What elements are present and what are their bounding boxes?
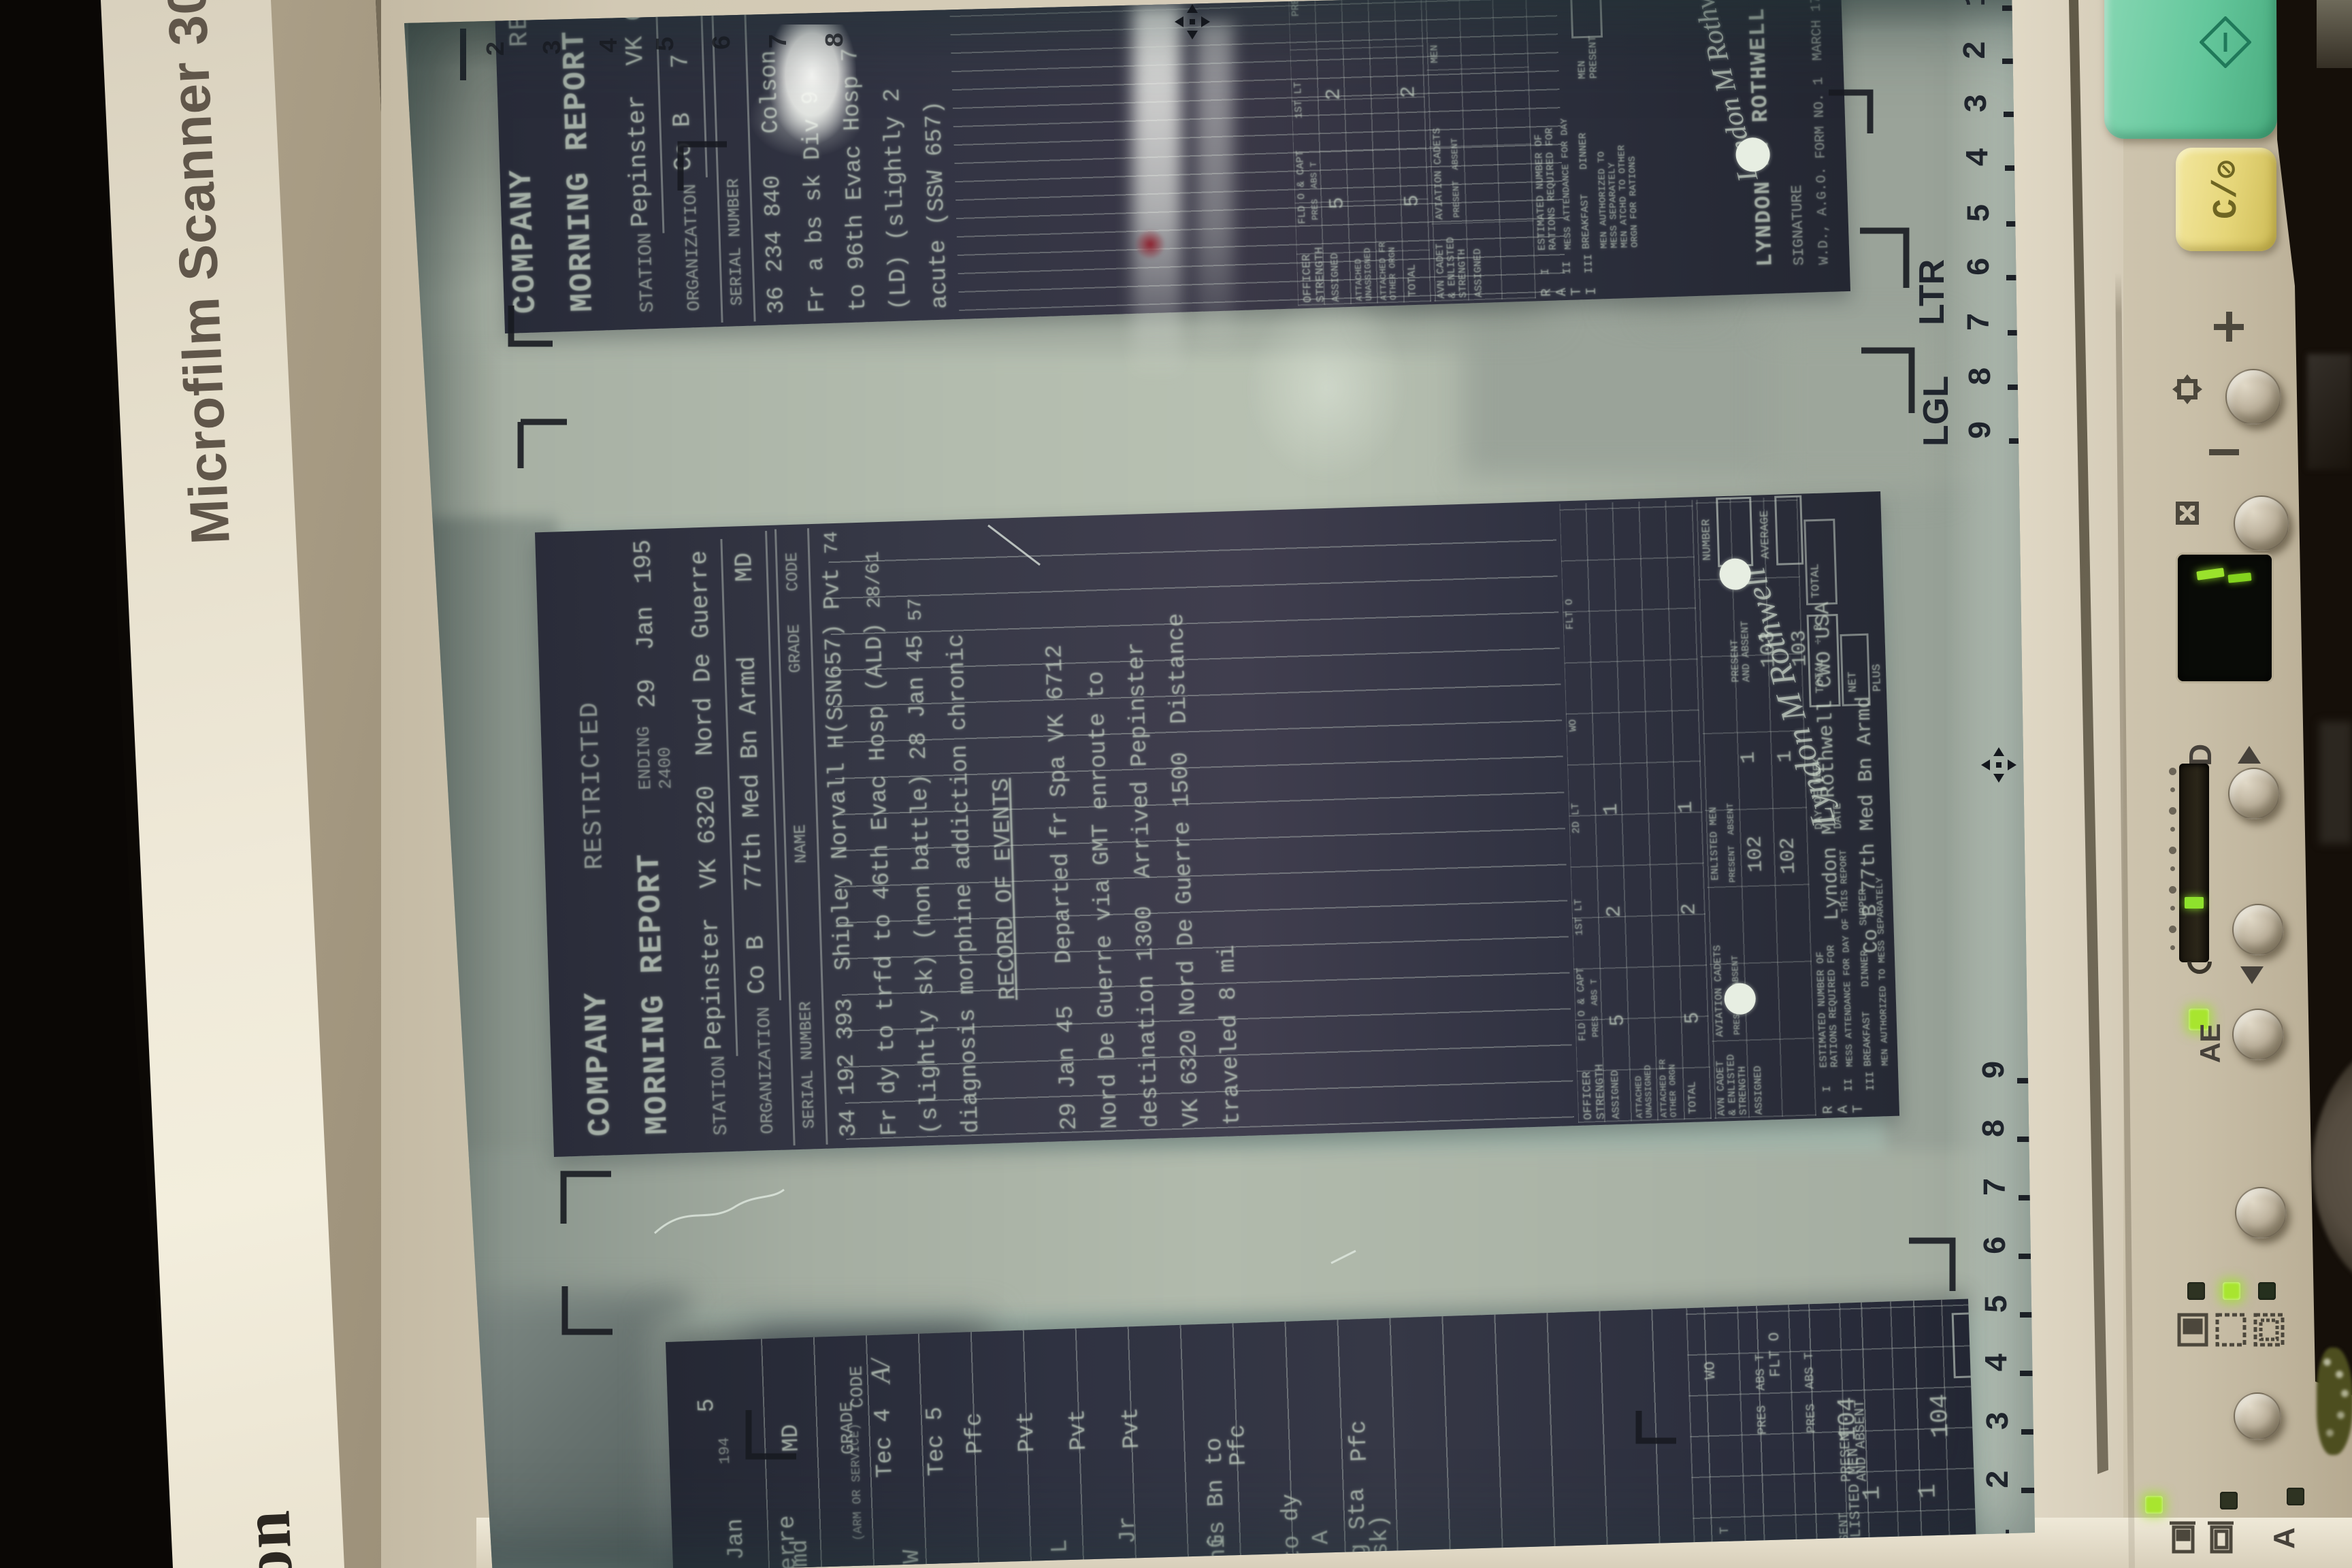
svg-text:8: 8: [1978, 1119, 2014, 1138]
svg-text:2: 2: [1982, 1470, 2018, 1489]
svg-text:6: 6: [708, 35, 738, 50]
svg-text:9: 9: [1964, 421, 2000, 440]
svg-text:3: 3: [1982, 1411, 2018, 1431]
svg-text:4: 4: [1961, 148, 1997, 167]
svg-text:8: 8: [821, 32, 851, 48]
svg-text:LTR: LTR: [1912, 259, 1952, 325]
svg-text:2: 2: [1959, 41, 1995, 60]
svg-text:4: 4: [595, 37, 625, 53]
svg-text:2: 2: [483, 41, 512, 56]
svg-text:3: 3: [539, 39, 568, 55]
svg-text:6: 6: [1979, 1236, 2015, 1255]
svg-text:LGL: LGL: [1916, 376, 1956, 446]
svg-text:5: 5: [1980, 1294, 2016, 1313]
svg-text:5: 5: [652, 36, 681, 52]
svg-text:7: 7: [1979, 1177, 2015, 1196]
svg-text:3: 3: [1960, 94, 1996, 113]
svg-text:1: 1: [1959, 0, 1995, 7]
svg-text:7: 7: [1963, 312, 1999, 331]
svg-text:4: 4: [1980, 1353, 2016, 1372]
svg-text:7: 7: [765, 33, 794, 49]
svg-text:5: 5: [1963, 203, 1999, 223]
svg-text:8: 8: [1964, 367, 2000, 386]
svg-text:9: 9: [1978, 1060, 2014, 1079]
svg-text:6: 6: [1963, 257, 1999, 276]
